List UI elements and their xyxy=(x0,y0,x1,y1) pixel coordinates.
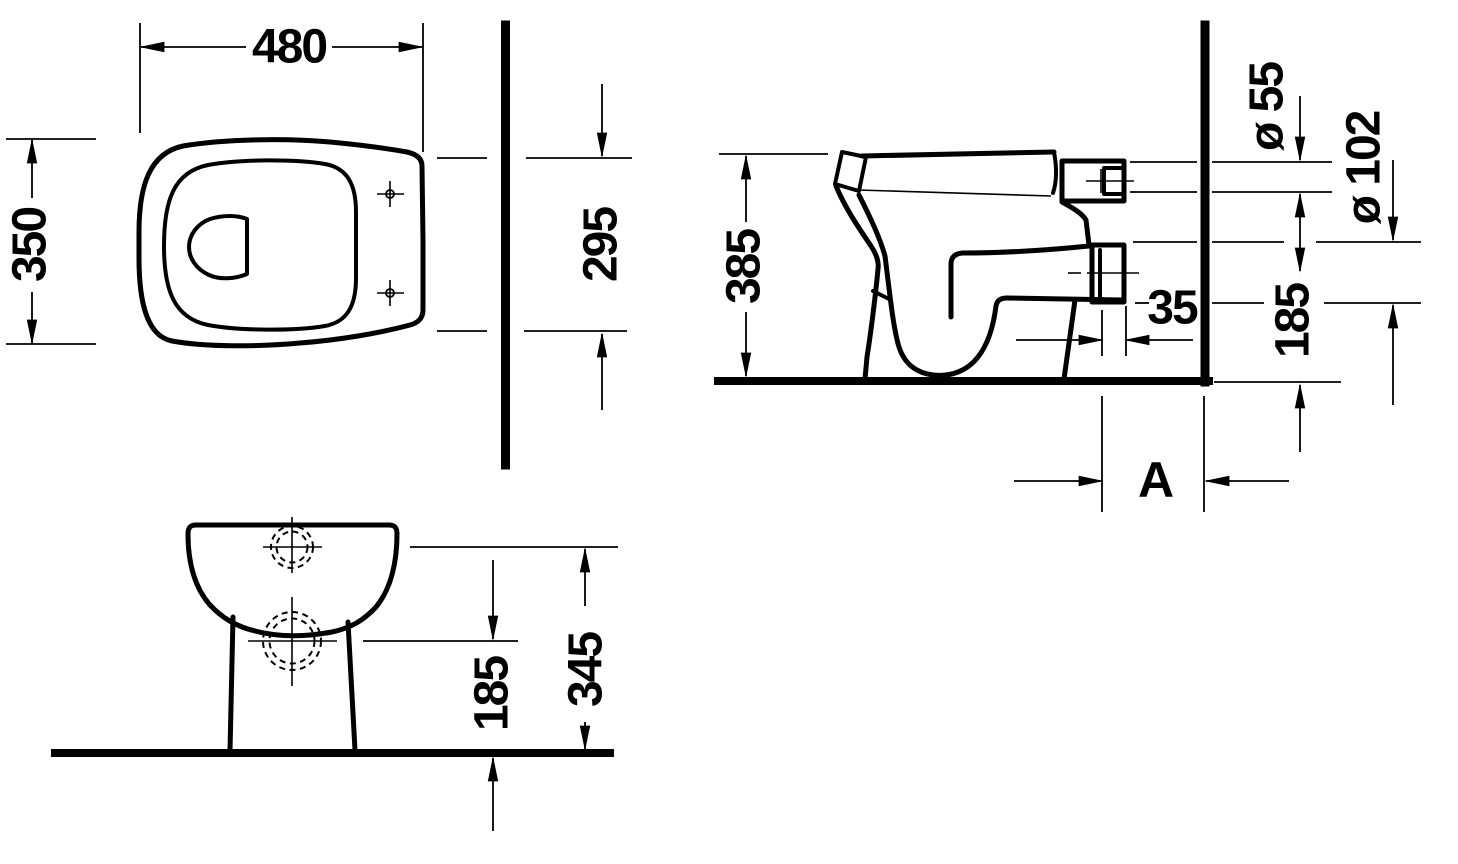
dim-label-outlet-axis-height: 185 xyxy=(1267,283,1320,358)
side-dim-35: 35 xyxy=(1016,282,1198,357)
side-trap-weir xyxy=(951,246,1089,317)
side-bowl-interior xyxy=(859,195,1122,375)
wc-dimension-drawing: 480 350 295 xyxy=(0,0,1458,864)
dim-label-inlet-axis-height: 345 xyxy=(560,632,613,707)
side-waterline xyxy=(858,190,1051,196)
dim-label-outlet-axis-height-front: 185 xyxy=(466,656,519,731)
dim-label-outlet-diameter: ø 102 xyxy=(1338,111,1391,224)
side-back-profile xyxy=(1062,202,1089,245)
plan-view: 480 350 295 xyxy=(4,21,633,466)
plan-inner-rim xyxy=(164,160,356,329)
plan-dim-350: 350 xyxy=(4,139,97,344)
side-inlet-spud xyxy=(1062,161,1134,201)
front-pedestal-left xyxy=(230,617,233,751)
dim-label-depth: 350 xyxy=(4,208,57,282)
dim-label-outlet-projection: 35 xyxy=(1147,282,1198,335)
side-outlet-spud xyxy=(1068,245,1139,302)
front-pedestal-right xyxy=(348,622,355,750)
side-top-surface xyxy=(862,152,1054,156)
front-dim-185: 185 xyxy=(363,560,519,831)
dim-label-height: 385 xyxy=(718,229,771,304)
front-view: 345 185 xyxy=(55,517,618,831)
side-dim-outlet-diameter: ø 102 xyxy=(1338,111,1394,405)
dim-label-inlet-diameter: ø 55 xyxy=(1241,62,1294,151)
plan-hinge-hole-bottom xyxy=(377,280,404,306)
plan-dim-295: 295 xyxy=(437,84,632,410)
side-dim-385: 385 xyxy=(718,154,829,376)
plan-dim-480: 480 xyxy=(140,21,423,153)
dim-label-wall-distance: A xyxy=(1138,452,1173,508)
plan-hinge-hole-top xyxy=(377,181,404,207)
side-dim-A: A xyxy=(1014,396,1289,512)
side-back-top-edge xyxy=(1053,152,1056,193)
side-dim-185: 185 xyxy=(1267,283,1320,452)
side-view: 385 ø 55 ø 102 xyxy=(718,25,1422,512)
dim-label-width: 480 xyxy=(252,21,326,74)
technical-drawing-page: 480 350 295 xyxy=(0,0,1458,864)
plan-drain-opening xyxy=(189,216,247,278)
side-front-profile xyxy=(836,186,878,379)
front-outlet-hidden-circles xyxy=(248,597,337,686)
dim-label-back-width: 295 xyxy=(575,207,628,282)
side-dim-inlet-diameter: ø 55 xyxy=(1241,62,1301,271)
plan-outer-rim xyxy=(139,140,423,346)
